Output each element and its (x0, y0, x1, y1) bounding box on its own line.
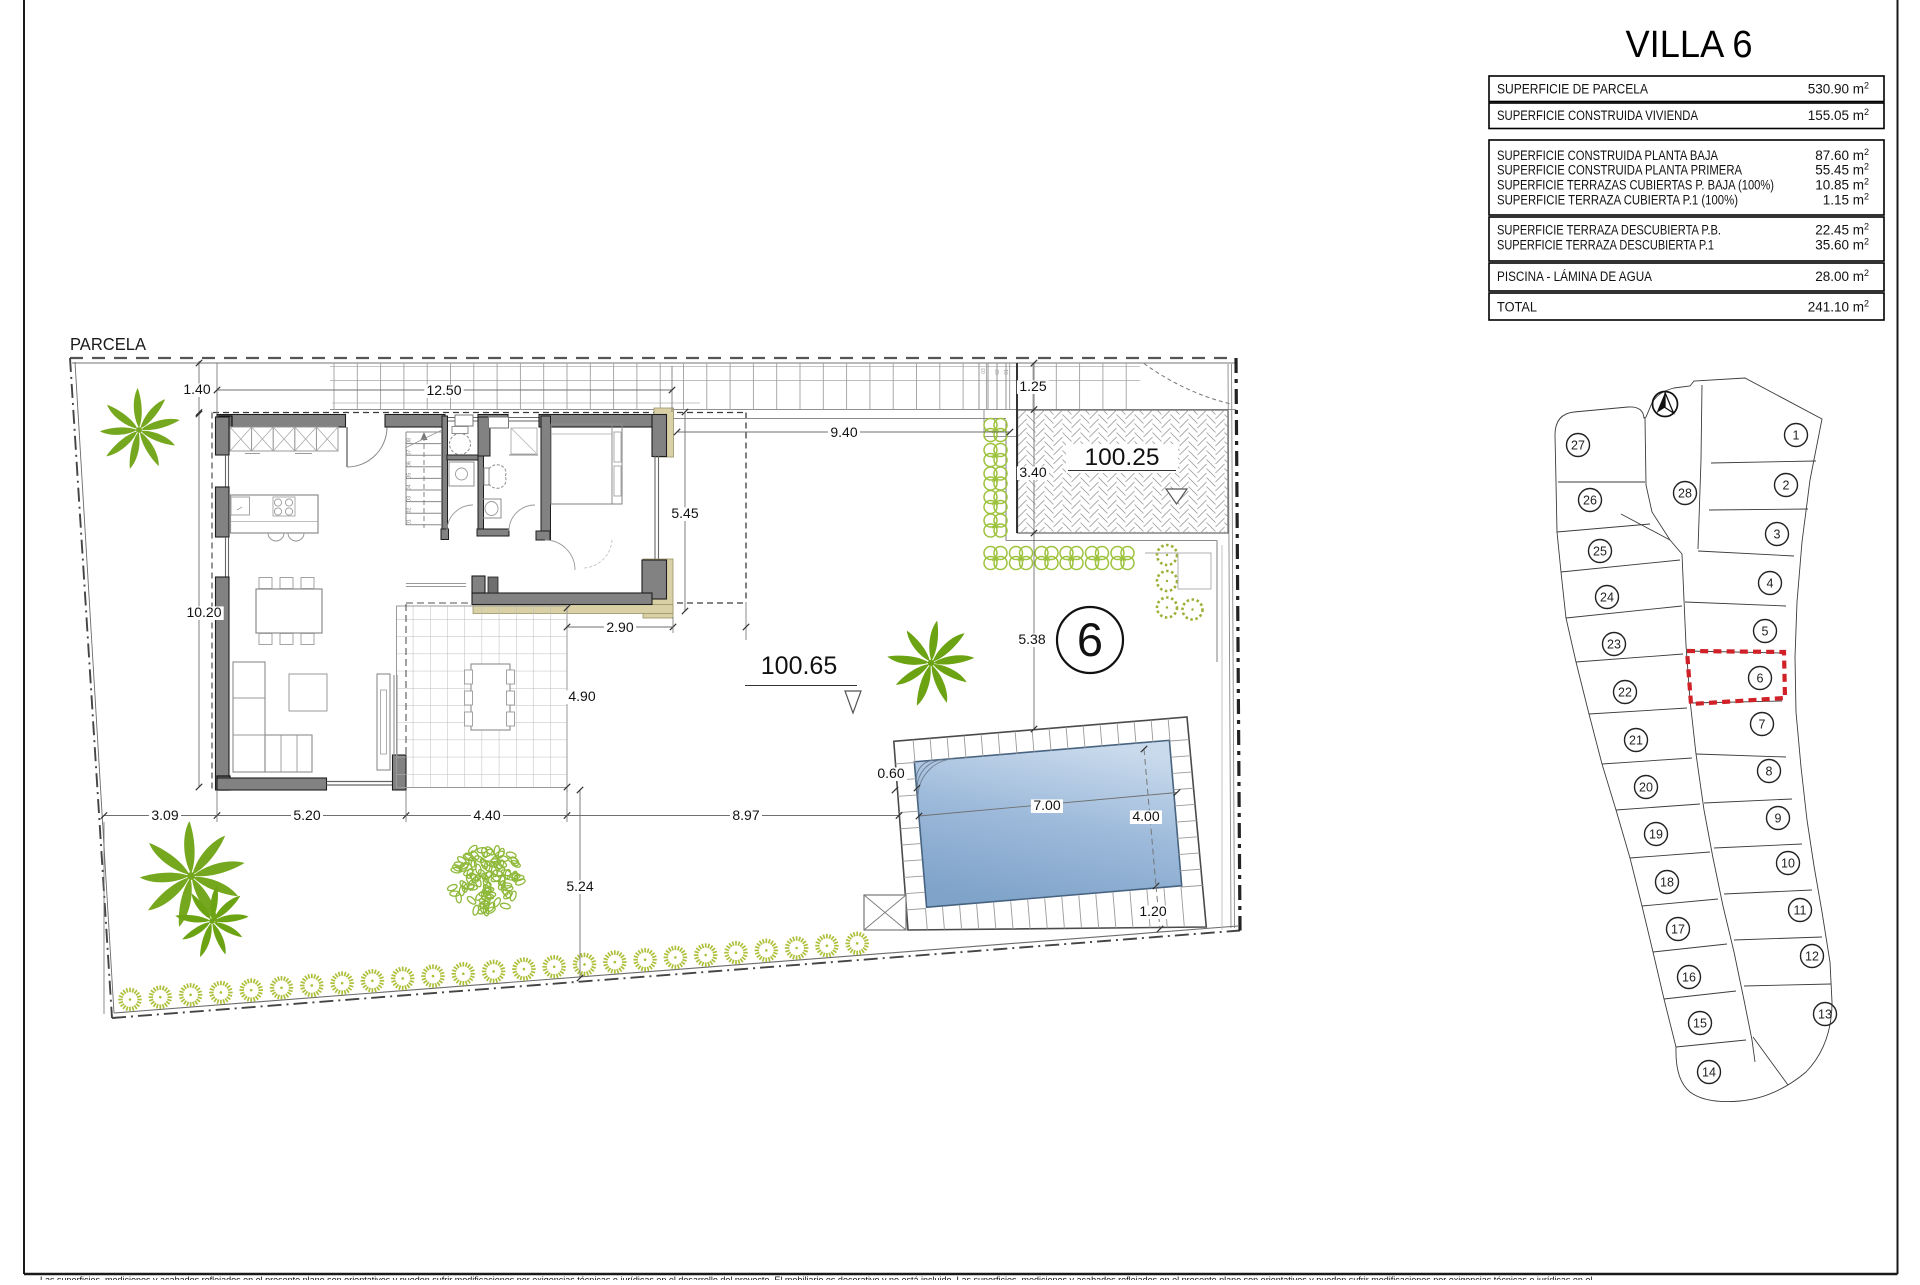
svg-text:03: 03 (981, 368, 987, 374)
svg-text:530.90 m2: 530.90 m2 (1808, 81, 1869, 97)
svg-text:TOTAL: TOTAL (1497, 300, 1537, 315)
svg-text:87.60 m2: 87.60 m2 (1815, 147, 1869, 163)
svg-text:07: 07 (407, 450, 413, 456)
svg-text:04: 04 (407, 484, 413, 490)
svg-text:1: 1 (1793, 429, 1800, 443)
svg-text:PISCINA - LÁMINA DE AGUA: PISCINA - LÁMINA DE AGUA (1497, 269, 1652, 284)
svg-text:10: 10 (1781, 857, 1795, 871)
svg-text:3.40: 3.40 (1019, 464, 1046, 480)
svg-text:12: 12 (1805, 950, 1819, 964)
svg-text:3.09: 3.09 (151, 807, 178, 823)
svg-text:2: 2 (1783, 479, 1790, 493)
svg-text:01: 01 (407, 519, 413, 525)
svg-text:03: 03 (407, 496, 413, 502)
svg-text:13: 13 (1818, 1008, 1832, 1022)
svg-text:5.20: 5.20 (293, 807, 320, 823)
svg-text:02: 02 (407, 508, 413, 514)
svg-text:14: 14 (1702, 1066, 1716, 1080)
svg-text:55.45 m2: 55.45 m2 (1815, 162, 1869, 178)
svg-text:1.25: 1.25 (1019, 378, 1046, 394)
svg-text:08: 08 (407, 438, 413, 444)
svg-text:5: 5 (1762, 625, 1769, 639)
svg-text:SUPERFICIE DE PARCELA: SUPERFICIE DE PARCELA (1497, 82, 1648, 97)
svg-text:19: 19 (1649, 828, 1663, 842)
svg-text:27: 27 (1571, 439, 1585, 453)
svg-text:7: 7 (1759, 718, 1766, 732)
svg-text:1.20: 1.20 (1139, 903, 1166, 919)
svg-text:5.45: 5.45 (671, 505, 698, 521)
svg-text:9.40: 9.40 (830, 424, 857, 440)
svg-text:PARCELA: PARCELA (70, 334, 146, 354)
svg-text:4: 4 (1767, 577, 1774, 591)
svg-text:11: 11 (1794, 904, 1807, 918)
svg-text:SUPERFICIE CONSTRUIDA PLANTA P: SUPERFICIE CONSTRUIDA PLANTA PRIMERA (1497, 163, 1742, 178)
svg-text:01: 01 (1004, 369, 1010, 375)
svg-text:9: 9 (1775, 812, 1782, 826)
svg-text:Las superficies, mediciones y: Las superficies, mediciones y acabados r… (40, 1275, 1592, 1280)
svg-text:21: 21 (1629, 734, 1643, 748)
svg-text:5.24: 5.24 (566, 878, 593, 894)
svg-text:4.00: 4.00 (1132, 808, 1159, 824)
svg-text:5.38: 5.38 (1018, 631, 1045, 647)
svg-text:20: 20 (1639, 781, 1653, 795)
svg-text:16: 16 (1682, 971, 1696, 985)
svg-text:22.45 m2: 22.45 m2 (1815, 222, 1869, 238)
svg-text:6: 6 (1757, 672, 1764, 686)
svg-text:28: 28 (1678, 487, 1692, 501)
svg-text:100.65: 100.65 (761, 652, 837, 680)
svg-text:1.40: 1.40 (183, 381, 210, 397)
svg-text:6: 6 (1077, 613, 1103, 666)
svg-text:241.10 m2: 241.10 m2 (1808, 299, 1869, 315)
svg-text:28.00 m2: 28.00 m2 (1815, 268, 1869, 284)
svg-text:SUPERFICIE CONSTRUIDA VIVIENDA: SUPERFICIE CONSTRUIDA VIVIENDA (1497, 108, 1698, 123)
svg-text:05: 05 (407, 473, 413, 479)
svg-text:35.60 m2: 35.60 m2 (1815, 237, 1869, 253)
svg-text:4.90: 4.90 (568, 688, 595, 704)
svg-text:SUPERFICIE CONSTRUIDA PLANTA B: SUPERFICIE CONSTRUIDA PLANTA BAJA (1497, 148, 1718, 163)
svg-text:SUPERFICIE TERRAZA DESCUBIERTA: SUPERFICIE TERRAZA DESCUBIERTA P.1 (1497, 238, 1714, 253)
svg-text:22: 22 (1618, 686, 1632, 700)
svg-text:4.40: 4.40 (473, 807, 500, 823)
svg-text:12.50: 12.50 (426, 382, 461, 398)
svg-text:10.20: 10.20 (186, 604, 221, 620)
svg-text:25: 25 (1593, 545, 1607, 559)
svg-text:VILLA 6: VILLA 6 (1626, 24, 1753, 66)
svg-text:7.00: 7.00 (1033, 797, 1060, 813)
svg-text:SUPERFICIE TERRAZA CUBIERTA P.: SUPERFICIE TERRAZA CUBIERTA P.1 (100%) (1497, 193, 1738, 208)
svg-text:0.60: 0.60 (877, 765, 904, 781)
svg-text:2.90: 2.90 (606, 619, 633, 635)
svg-text:23: 23 (1607, 638, 1621, 652)
svg-text:SUPERFICIE TERRAZAS CUBIERTAS: SUPERFICIE TERRAZAS CUBIERTAS P. BAJA (1… (1497, 178, 1774, 193)
svg-text:3: 3 (1774, 528, 1781, 542)
svg-text:02: 02 (995, 369, 1001, 375)
svg-text:8: 8 (1766, 765, 1773, 779)
svg-text:17: 17 (1671, 923, 1685, 937)
svg-text:155.05 m2: 155.05 m2 (1808, 107, 1869, 123)
svg-text:18: 18 (1660, 876, 1674, 890)
svg-text:SUPERFICIE TERRAZA DESCUBIERTA: SUPERFICIE TERRAZA DESCUBIERTA P.B. (1497, 223, 1721, 238)
svg-text:06: 06 (407, 461, 413, 467)
svg-text:8.97: 8.97 (732, 807, 759, 823)
svg-text:26: 26 (1583, 494, 1597, 508)
svg-text:100.25: 100.25 (1085, 444, 1160, 471)
svg-text:10.85 m2: 10.85 m2 (1815, 177, 1869, 193)
svg-text:24: 24 (1600, 591, 1614, 605)
svg-text:1.15 m2: 1.15 m2 (1823, 192, 1869, 208)
svg-text:15: 15 (1693, 1017, 1707, 1031)
